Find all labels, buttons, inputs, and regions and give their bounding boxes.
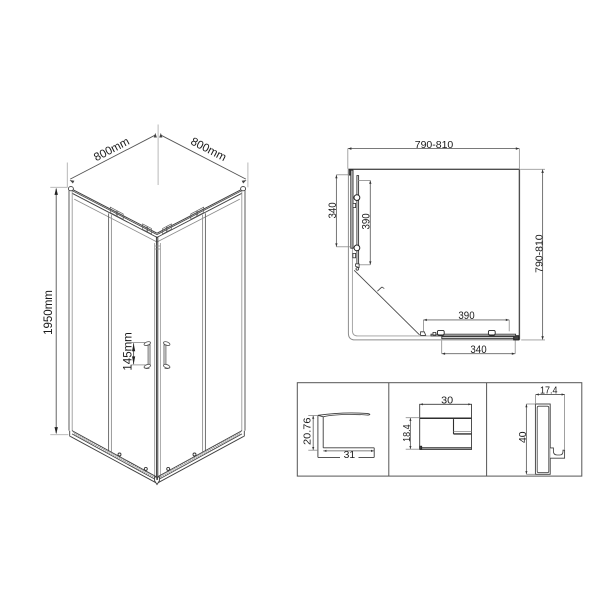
svg-text:390: 390 xyxy=(458,310,474,322)
svg-text:1950mm: 1950mm xyxy=(43,290,55,335)
svg-text:20.76: 20.76 xyxy=(303,417,314,445)
svg-text:17.4: 17.4 xyxy=(540,386,558,397)
svg-text:790-810: 790-810 xyxy=(534,234,545,273)
svg-text:30: 30 xyxy=(441,395,453,406)
svg-text:18.4: 18.4 xyxy=(402,424,413,442)
svg-text:390: 390 xyxy=(361,213,373,229)
svg-text:40: 40 xyxy=(518,431,529,443)
svg-text:790-810: 790-810 xyxy=(415,140,454,151)
svg-text:340: 340 xyxy=(470,344,486,356)
svg-text:340: 340 xyxy=(327,202,339,218)
svg-text:145mm: 145mm xyxy=(123,332,135,370)
svg-text:31: 31 xyxy=(344,450,356,461)
